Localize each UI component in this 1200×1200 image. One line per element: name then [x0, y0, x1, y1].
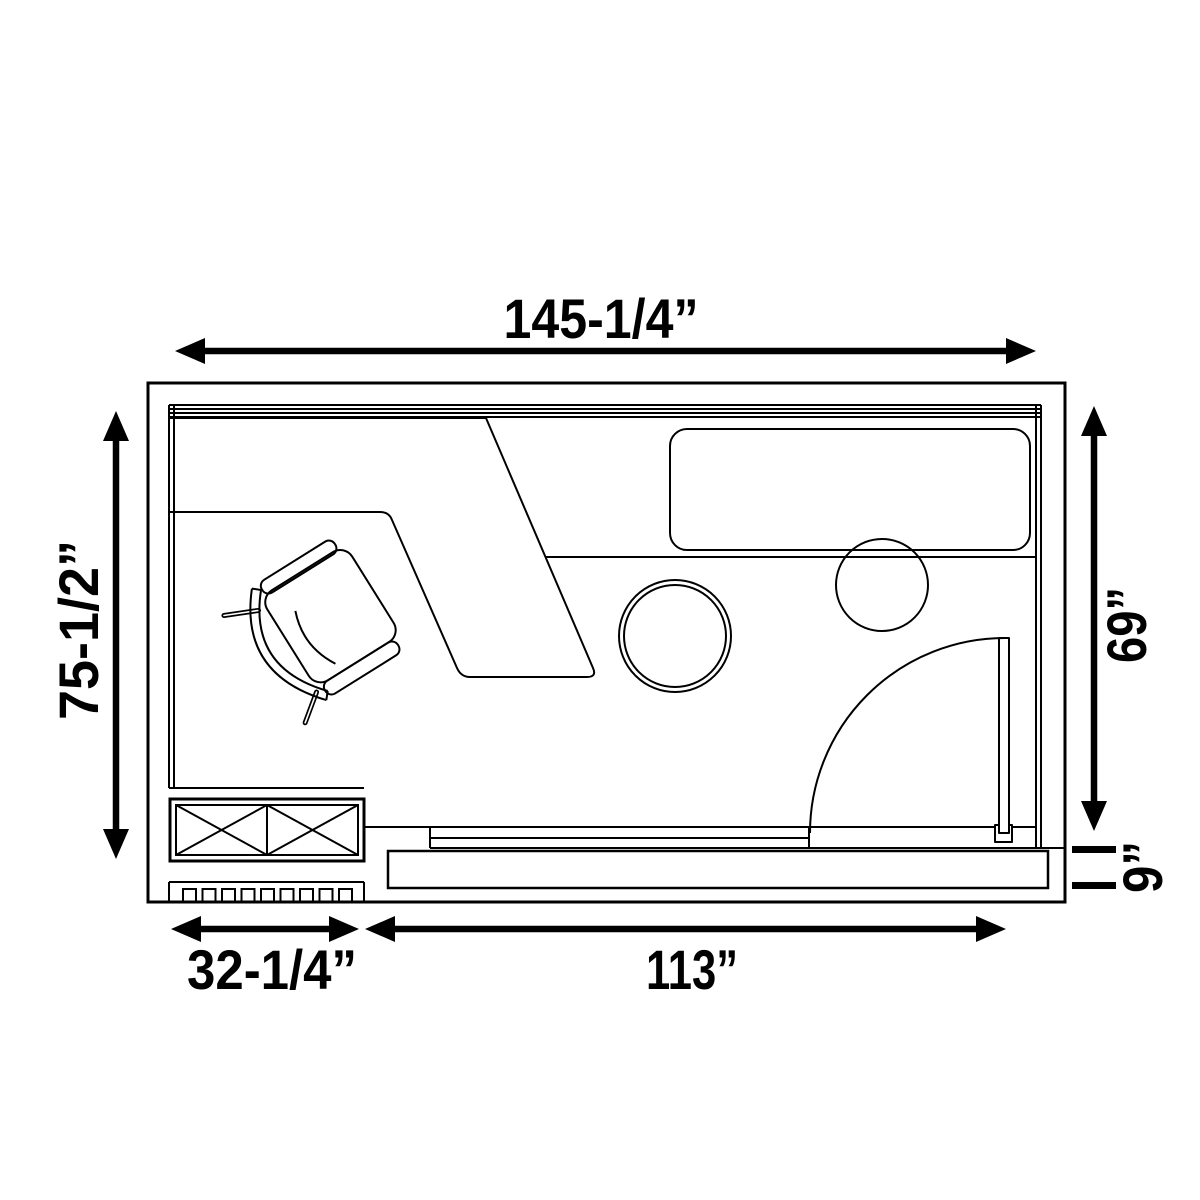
dimension-label-bottom-left-width: 32-1/4” — [187, 938, 357, 1001]
swing-door-icon — [810, 638, 1012, 842]
door-leaf — [999, 638, 1009, 833]
arrow-up-icon — [103, 411, 129, 441]
arrow-right-icon — [976, 916, 1006, 942]
dimension-bottom-right: 113” — [365, 916, 1006, 1001]
storage-cabinet-icon — [170, 799, 364, 861]
vent-grille-icon — [169, 882, 364, 902]
window-wall-icon — [169, 405, 1041, 417]
office-chair-icon — [219, 534, 414, 729]
dimension-label-deck-depth: 9” — [1111, 841, 1174, 893]
arrow-down-icon — [1081, 801, 1107, 831]
angled-desk-icon — [169, 418, 594, 677]
dimension-bottom-left: 32-1/4” — [171, 916, 359, 1001]
floor-plan-page: 145-1/4” 75-1/2” 69” 9” — [0, 0, 1200, 1200]
daybed-cushion-icon — [670, 429, 1030, 550]
furniture — [169, 418, 1036, 842]
structure-walls — [148, 383, 1065, 902]
round-table-icon — [836, 539, 928, 631]
dimension-top: 145-1/4” — [175, 287, 1036, 364]
door-swing-arc — [810, 638, 1005, 833]
dimension-right: 69” — [1081, 406, 1158, 831]
dimension-left: 75-1/2” — [47, 411, 129, 859]
arrow-left-icon — [175, 338, 205, 364]
arrow-left-icon — [365, 916, 395, 942]
arrow-up-icon — [1081, 406, 1107, 436]
dimension-label-right-height: 69” — [1095, 587, 1158, 663]
roof-outline — [148, 383, 1065, 902]
dimension-label-left-height: 75-1/2” — [47, 540, 110, 720]
arrow-down-icon — [103, 829, 129, 859]
deck-step-icon — [388, 851, 1048, 888]
bottom-wall — [169, 788, 1064, 848]
dimension-deck-depth: 9” — [1072, 841, 1174, 893]
arrow-right-icon — [1006, 338, 1036, 364]
right-wall — [1036, 405, 1041, 848]
floor-plan-canvas: 145-1/4” 75-1/2” 69” 9” — [0, 0, 1200, 1200]
dimension-label-top-width: 145-1/4” — [504, 287, 699, 350]
round-stool-icon — [619, 580, 731, 692]
dimension-label-bottom-right-width: 113” — [646, 938, 738, 1001]
